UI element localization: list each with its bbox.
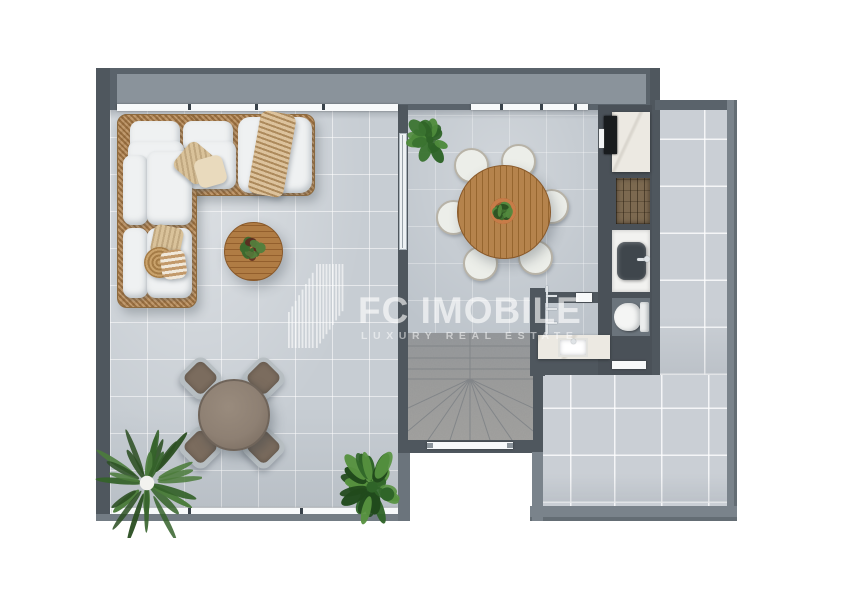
outer-wall-top-band <box>117 74 646 104</box>
window-mullion <box>255 104 258 110</box>
right-terrace-wall-top <box>655 100 737 110</box>
right-terrace-wall-bottom <box>530 506 737 521</box>
fern-plant <box>330 445 414 529</box>
right-terrace-floor-lower <box>543 375 728 506</box>
skyline-bars-logo-icon <box>288 260 344 354</box>
basin-faucet-knob <box>644 256 650 262</box>
outdoor-dining-table <box>198 379 270 451</box>
coffee-table-plant <box>236 234 268 266</box>
right-terrace-wall-right <box>727 100 737 521</box>
window-mullion <box>188 104 191 110</box>
window-strip-top-left <box>117 104 398 111</box>
toilet-tank <box>640 302 649 332</box>
kitchen-faucet <box>599 129 604 148</box>
right-terrace-floor <box>657 110 728 375</box>
entry-plant <box>402 112 458 168</box>
door-handle <box>507 443 513 448</box>
brand-name: FC IMOBILE <box>358 290 582 332</box>
shower-wood-floor <box>616 178 650 224</box>
sofa-back-cushion <box>123 155 148 225</box>
window-mullion <box>500 104 503 110</box>
stairs-glass-door-threshold <box>427 442 513 449</box>
blanket-roll <box>159 248 188 280</box>
notch-wall-right <box>532 452 543 521</box>
window-mullion <box>574 104 577 110</box>
window-strip-top-dining <box>471 104 588 110</box>
brand-tagline: LUXURY REAL ESTATE <box>361 330 578 342</box>
cooktop <box>604 116 617 154</box>
window-mullion <box>322 104 325 110</box>
floor-plan-render: FC IMOBILE LUXURY REAL ESTATE <box>0 0 849 600</box>
window-mullion <box>540 104 543 110</box>
toilet-bowl <box>614 303 641 331</box>
wall-hung-basin <box>617 242 646 280</box>
door-handle <box>427 443 433 448</box>
palm-plant <box>92 428 202 538</box>
watermark: FC IMOBILE LUXURY REAL ESTATE <box>286 258 586 358</box>
wc-door-threshold <box>612 361 646 369</box>
kitchen-counter <box>612 112 650 172</box>
centerpiece-plant <box>489 197 517 225</box>
